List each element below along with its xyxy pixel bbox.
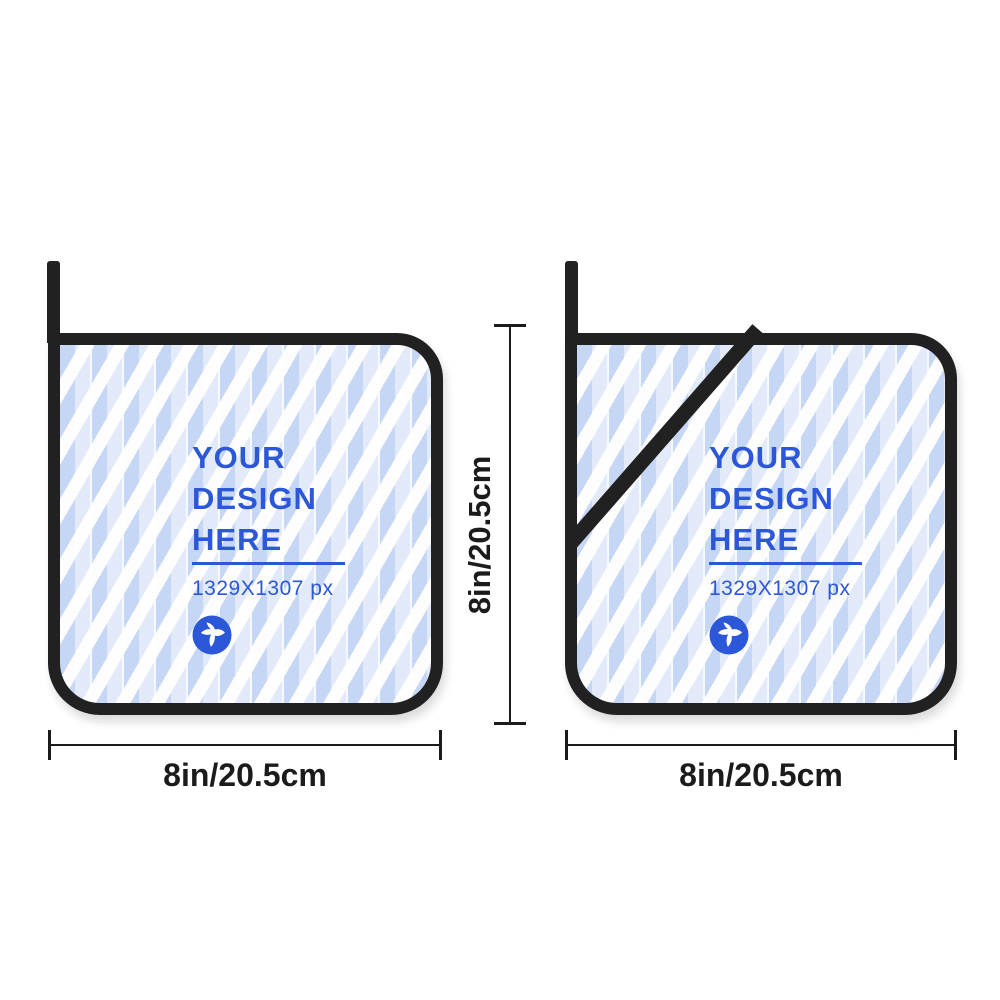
design-size-note: 1329X1307 px [709,576,850,602]
hummingbird-logo-icon [709,615,749,655]
design-placeholder-block: YOUR DESIGN HERE 1329X1307 px [192,437,422,655]
hanging-loop-left [47,261,60,343]
height-dimension-line [509,325,511,725]
design-text-line2: DESIGN [709,478,834,519]
width-dimension-line-right [565,744,957,746]
height-dimension-cap-bottom [494,722,526,725]
hummingbird-logo-icon [192,615,232,655]
design-text-line1: YOUR [709,437,803,478]
width-dimension-label-left: 8in/20.5cm [48,756,442,794]
hanging-loop-right [565,261,578,343]
design-text-line1: YOUR [192,437,286,478]
design-text-line3: HERE [192,519,282,560]
potholder-mockup-canvas: YOUR DESIGN HERE 1329X1307 px YOUR DESIG… [0,0,1000,1000]
width-dimension-label-right: 8in/20.5cm [565,756,957,794]
potholder-front: YOUR DESIGN HERE 1329X1307 px [48,333,443,715]
design-text-line2: DESIGN [192,478,317,519]
width-dimension-line-left [48,744,442,746]
design-underline [192,562,345,565]
design-size-note: 1329X1307 px [192,576,333,602]
height-dimension-label: 8in/20.5cm [462,435,498,635]
potholder-back-with-pocket: YOUR DESIGN HERE 1329X1307 px [565,333,957,715]
design-placeholder-block: YOUR DESIGN HERE 1329X1307 px [709,437,939,655]
height-dimension-cap-top [494,324,526,327]
design-underline [709,562,862,565]
design-text-line3: HERE [709,519,799,560]
